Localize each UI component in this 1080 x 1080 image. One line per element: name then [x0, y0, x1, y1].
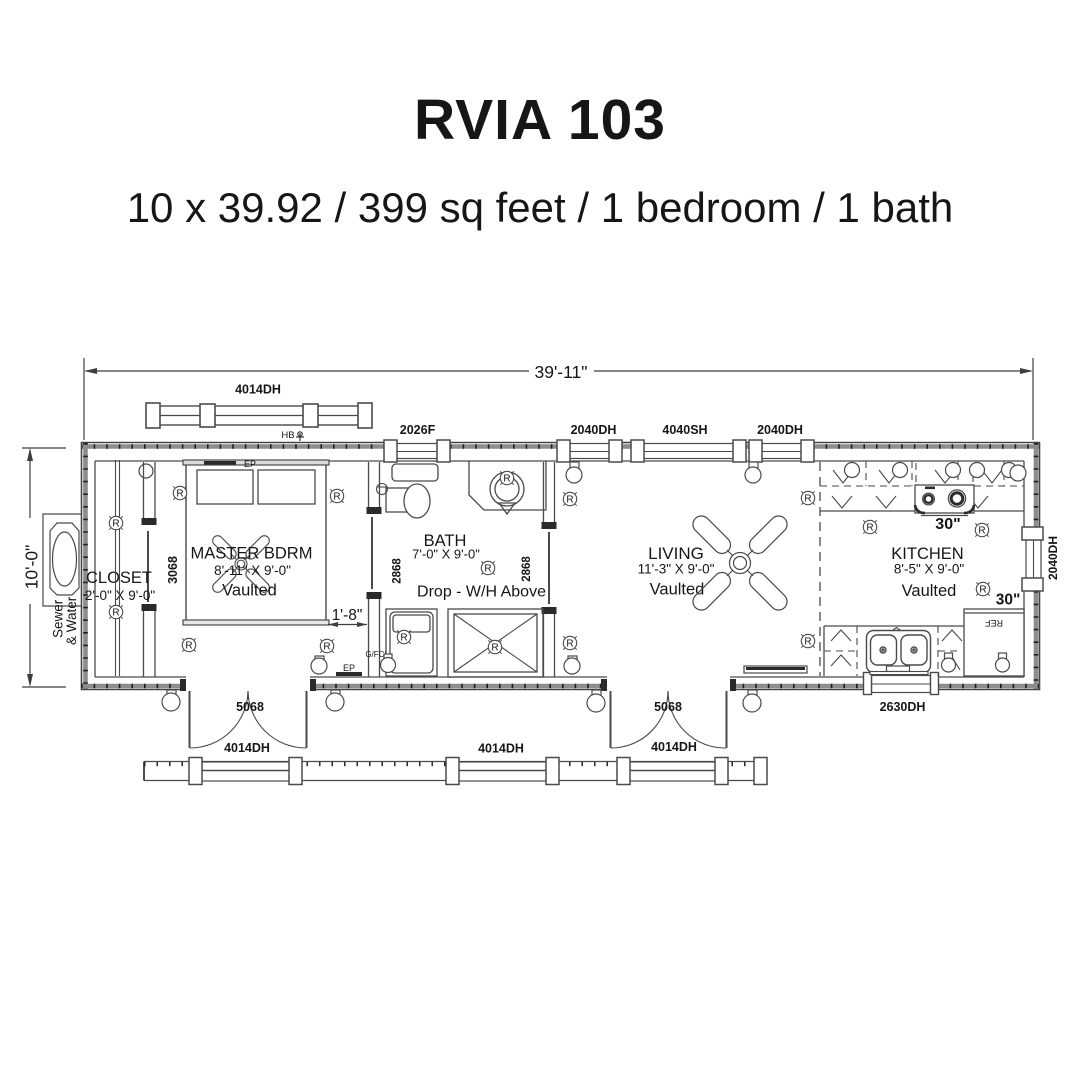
- svg-text:R: R: [333, 492, 340, 503]
- svg-text:10 x 39.92 / 399 sq feet / 1 b: 10 x 39.92 / 399 sq feet / 1 bedroom / 1…: [127, 184, 954, 231]
- svg-text:R: R: [804, 494, 811, 505]
- svg-text:2040DH: 2040DH: [1046, 536, 1060, 580]
- svg-text:2040DH: 2040DH: [571, 423, 617, 437]
- svg-text:Vaulted: Vaulted: [222, 582, 277, 600]
- svg-text:R: R: [979, 585, 986, 596]
- svg-text:Vaulted: Vaulted: [650, 581, 705, 599]
- svg-text:RVIA 103: RVIA 103: [414, 88, 666, 152]
- svg-text:HB: HB: [281, 430, 294, 441]
- svg-text:30": 30": [996, 592, 1021, 609]
- svg-text:1'-8": 1'-8": [332, 607, 363, 624]
- svg-text:4040SH: 4040SH: [662, 423, 707, 437]
- svg-text:30": 30": [935, 516, 960, 533]
- svg-text:2026F: 2026F: [400, 423, 436, 437]
- svg-text:2630DH: 2630DH: [880, 700, 926, 714]
- svg-text:R: R: [866, 523, 873, 534]
- svg-text:R: R: [566, 495, 573, 506]
- svg-text:2868: 2868: [392, 558, 404, 584]
- svg-text:R: R: [112, 519, 119, 530]
- svg-text:R: R: [978, 526, 985, 537]
- svg-text:11'-3" X 9'-0": 11'-3" X 9'-0": [638, 562, 715, 577]
- svg-text:R: R: [400, 633, 407, 644]
- svg-text:2868: 2868: [521, 556, 533, 582]
- svg-text:4014DH: 4014DH: [235, 383, 281, 397]
- svg-text:R: R: [804, 637, 811, 648]
- svg-text:KITCHEN: KITCHEN: [891, 545, 963, 563]
- svg-text:Vaulted: Vaulted: [902, 582, 957, 600]
- svg-text:REF: REF: [984, 618, 1003, 628]
- svg-text:Drop - W/H Above: Drop - W/H Above: [417, 584, 546, 601]
- svg-text:4014DH: 4014DH: [651, 740, 697, 754]
- svg-text:2'-0" X 9'-0": 2'-0" X 9'-0": [85, 588, 155, 603]
- svg-text:10'-0": 10'-0": [22, 545, 42, 590]
- svg-text:EP: EP: [343, 663, 355, 673]
- svg-text:MASTER BDRM: MASTER BDRM: [191, 545, 313, 563]
- svg-text:EP: EP: [244, 459, 256, 469]
- svg-text:R: R: [112, 608, 119, 619]
- svg-text:39'-11": 39'-11": [534, 362, 587, 382]
- svg-text:4014DH: 4014DH: [224, 741, 270, 755]
- svg-text:LIVING: LIVING: [648, 544, 704, 563]
- svg-text:R: R: [176, 489, 183, 500]
- svg-text:R: R: [566, 639, 573, 650]
- svg-text:7'-0" X 9'-0": 7'-0" X 9'-0": [412, 547, 480, 562]
- svg-text:2040DH: 2040DH: [757, 423, 803, 437]
- svg-text:R: R: [484, 564, 491, 575]
- svg-text:R: R: [491, 643, 498, 654]
- svg-text:5068: 5068: [654, 700, 682, 714]
- svg-text:R: R: [323, 642, 330, 653]
- svg-text:R: R: [503, 474, 510, 485]
- svg-text:3068: 3068: [166, 556, 180, 584]
- svg-text:R: R: [185, 641, 192, 652]
- svg-text:8'-5" X 9'-0": 8'-5" X 9'-0": [894, 562, 964, 577]
- svg-text:& Water: & Water: [64, 596, 79, 645]
- svg-text:8'-11" X 9'-0": 8'-11" X 9'-0": [214, 563, 291, 578]
- svg-text:4014DH: 4014DH: [478, 742, 524, 756]
- svg-text:5068: 5068: [236, 700, 264, 714]
